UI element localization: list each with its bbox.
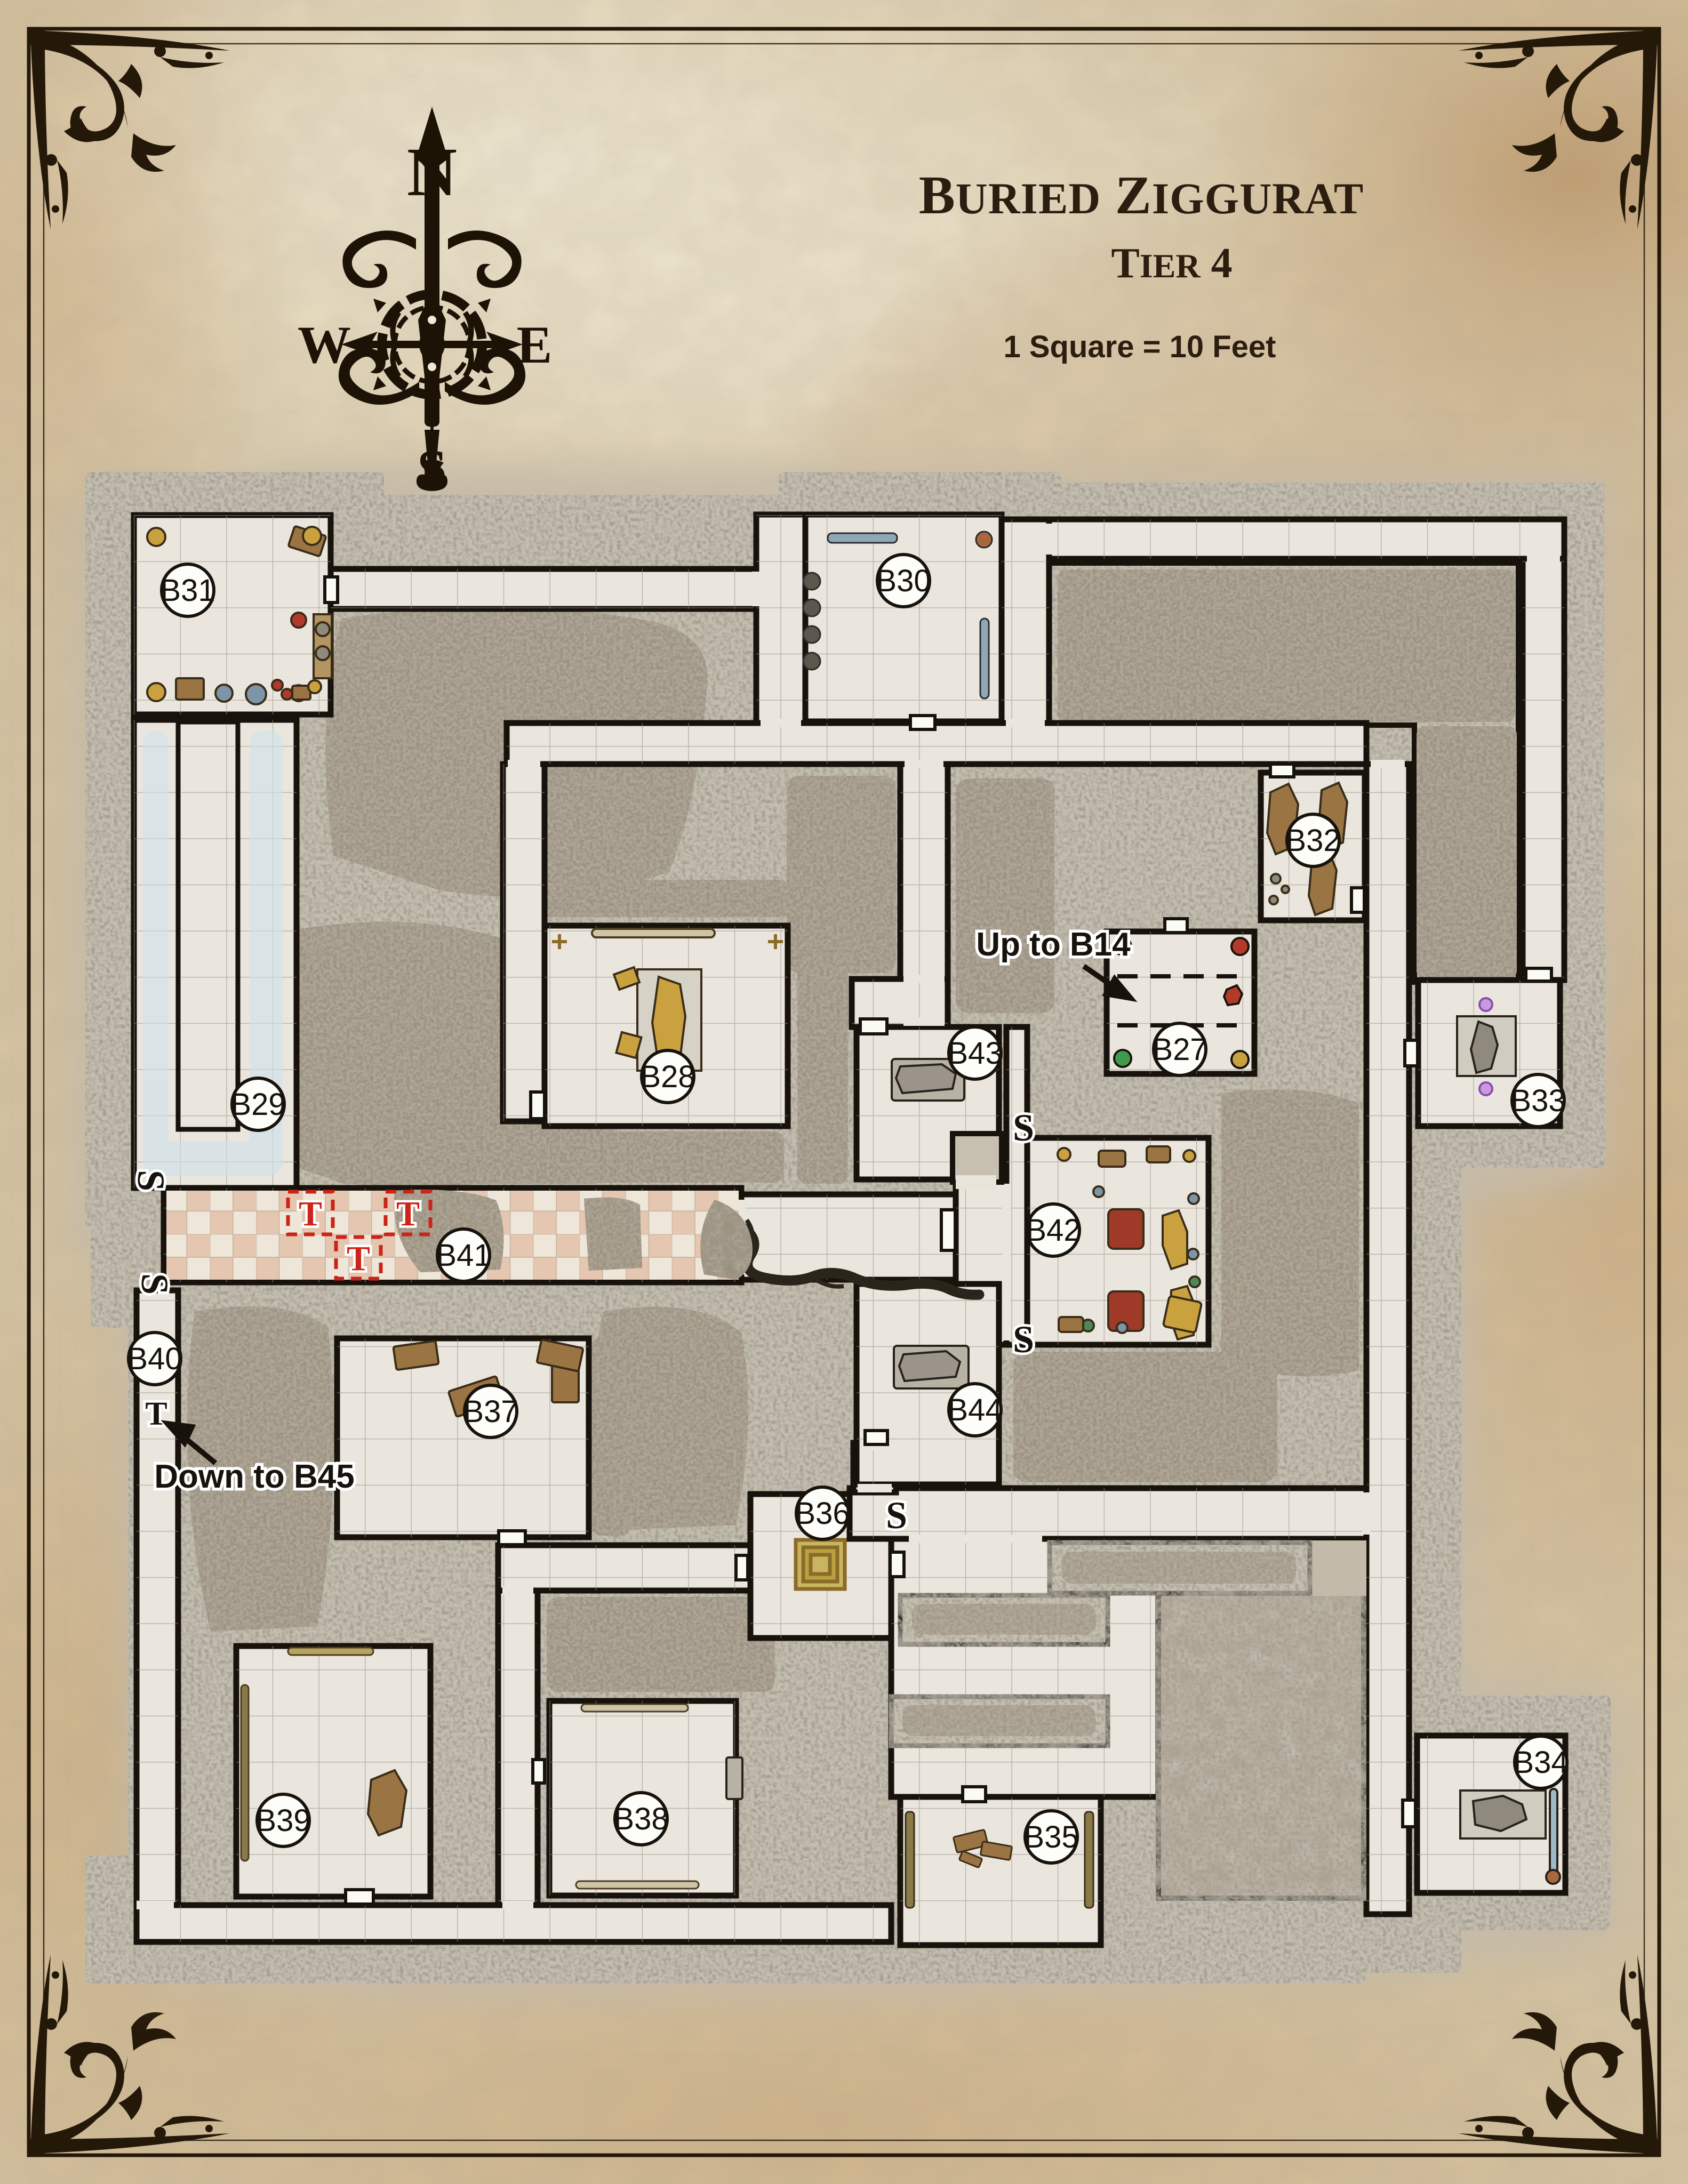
svg-text:E: E [517,315,553,374]
svg-text:S: S [1013,1318,1034,1361]
svg-text:T: T [299,1194,322,1233]
svg-text:S: S [130,1170,172,1191]
svg-text:B27: B27 [1152,1032,1207,1067]
svg-text:TIER 4: TIER 4 [1111,240,1232,287]
svg-text:B31: B31 [160,573,215,608]
svg-text:B36: B36 [795,1496,850,1531]
svg-text:B35: B35 [1023,1820,1078,1854]
svg-text:B32: B32 [1285,823,1340,858]
svg-text:B37: B37 [463,1394,518,1429]
svg-text:S: S [133,1273,176,1295]
svg-text:B30: B30 [876,564,931,598]
svg-text:B28: B28 [640,1059,695,1094]
svg-text:B44: B44 [947,1393,1002,1427]
svg-text:B40: B40 [127,1342,182,1376]
svg-text:S: S [1013,1106,1034,1149]
svg-text:W: W [298,315,351,374]
svg-text:S: S [417,439,447,498]
svg-text:B43: B43 [947,1036,1002,1071]
svg-text:B33: B33 [1510,1083,1565,1118]
svg-text:S: S [886,1494,907,1537]
svg-text:Down to B45: Down to B45 [154,1458,354,1495]
svg-text:BURIED ZIGGURAT: BURIED ZIGGURAT [919,165,1364,226]
svg-text:1 Square = 10 Feet: 1 Square = 10 Feet [1004,330,1276,364]
svg-text:B38: B38 [613,1802,668,1836]
svg-text:Up to B14: Up to B14 [976,926,1131,963]
svg-text:T: T [145,1396,167,1432]
svg-text:B34: B34 [1513,1745,1568,1780]
svg-text:B29: B29 [230,1087,285,1122]
svg-text:B41: B41 [436,1238,491,1273]
svg-text:T: T [396,1194,420,1233]
svg-text:B39: B39 [255,1803,310,1838]
svg-text:N: N [407,134,457,211]
svg-text:T: T [347,1239,370,1278]
svg-text:B42: B42 [1026,1213,1081,1248]
